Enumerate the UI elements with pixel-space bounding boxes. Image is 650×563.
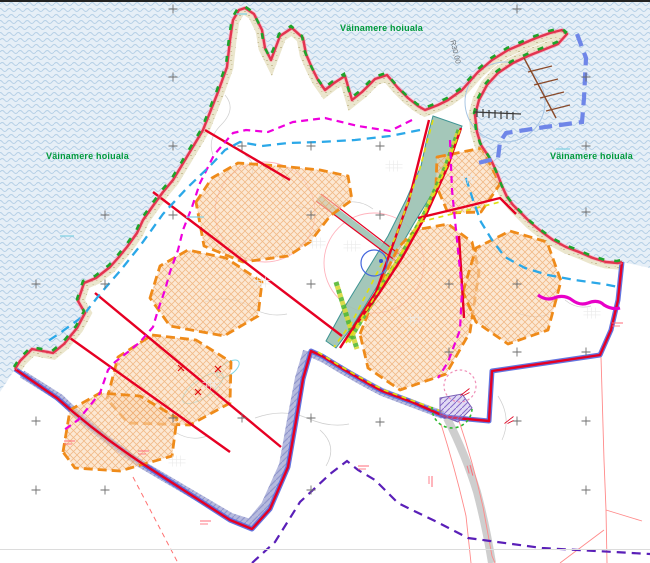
detail-plan-map: Väinamere hoiuala Väinamere hoiuala Väin… <box>0 0 650 563</box>
protected-area-label-north: Väinamere hoiuala <box>340 23 423 33</box>
well-dot <box>379 259 383 263</box>
map-frame-line <box>0 549 650 550</box>
window-top-edge <box>0 0 650 2</box>
protected-area-label-east: Väinamere hoiuala <box>550 151 633 161</box>
site-plan-canvas <box>0 0 650 563</box>
protected-area-label-west: Väinamere hoiuala <box>46 151 129 161</box>
